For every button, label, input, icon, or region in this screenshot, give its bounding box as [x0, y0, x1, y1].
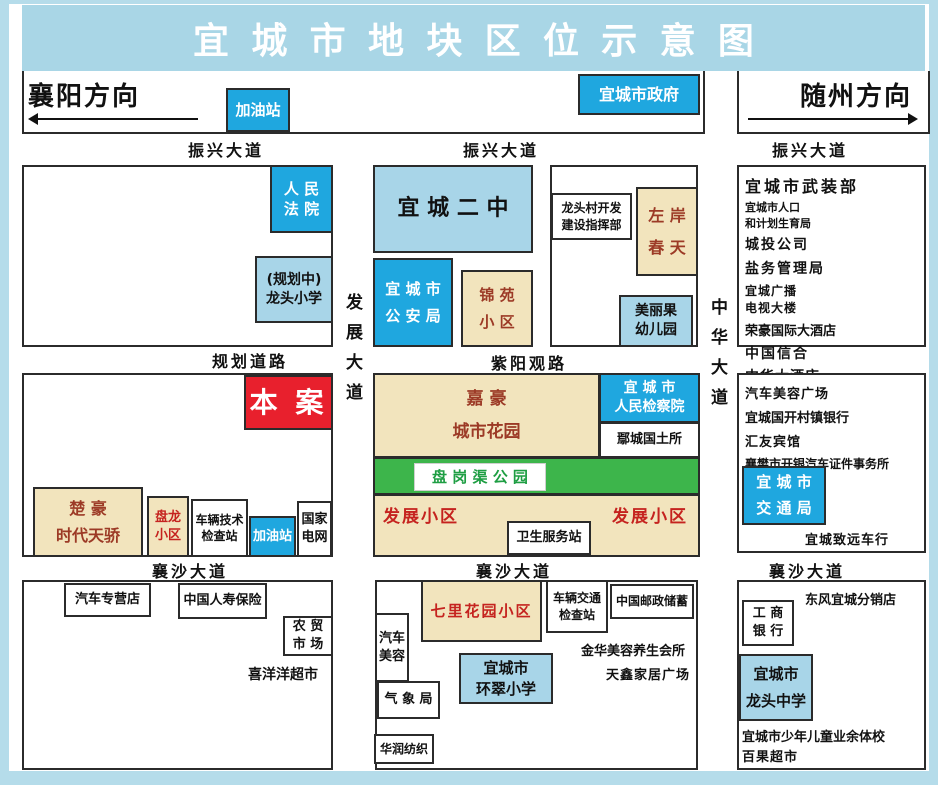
road-label-zhenxing-mid: 振兴大道: [463, 137, 539, 161]
box-zuoan-spring: 左 岸 春 天: [636, 187, 698, 276]
west-arrow-icon: [30, 118, 198, 120]
box-auto-store: 汽车专营店: [64, 583, 151, 617]
road-label-xiangsha-mid: 襄沙大道: [476, 558, 552, 582]
list-item: 电视大楼: [745, 299, 926, 316]
road-label-fazhan-avenue: 发展大道: [340, 293, 365, 413]
box-icbc-bank: 工 商 银 行: [742, 600, 794, 646]
fazhan-estate-left-label: 发展小区: [383, 502, 459, 527]
box-yicheng-no2-middle-school: 宜 城 二 中: [373, 165, 533, 253]
road-label-zhonghua-avenue: 中华大道: [705, 298, 730, 418]
road-label-ziyang: 紫阳观路: [491, 350, 567, 374]
box-peoples-court: 人 民 法 院: [270, 165, 333, 233]
list-item: 宜城国开村镇银行: [745, 407, 926, 426]
frame-left: [0, 0, 9, 785]
box-transport-bureau: 宜 城 市 交 通 局: [742, 466, 826, 525]
box-huarun-textile: 华润纺织: [374, 734, 434, 764]
list-item: 宜城广播: [745, 282, 926, 299]
list-item: 汽车美容广场: [745, 383, 926, 402]
box-qili-flower-garden: 七里花园小区: [421, 580, 542, 642]
jinhua-spa-label: 金华美容养生会所: [581, 640, 685, 659]
youth-sports-school-label: 宜城市少年儿童业余体校: [742, 726, 885, 745]
box-gas-station-west: 加油站: [249, 516, 296, 557]
box-auto-beauty: 汽车 美容: [375, 613, 409, 682]
list-item: 和计划生育局: [745, 215, 926, 231]
east-poi-list: 汽车美容广场 宜城国开村镇银行 汇友宾馆 襄樊市开银汽车证件事务所: [737, 373, 926, 465]
box-state-grid: 国家 电网: [297, 501, 332, 557]
box-chuhao-times: 楚 豪 时代天骄: [33, 487, 143, 557]
box-huancui-primary-school: 宜城市 环翠小学: [459, 653, 553, 704]
direction-west-label: 襄阳方向: [28, 76, 140, 113]
list-item: 城投公司: [745, 234, 926, 254]
list-item: 荣豪国际大酒店: [745, 320, 926, 339]
box-public-security-bureau: 宜 城 市 公 安 局: [373, 258, 453, 347]
xiyangyang-market-label: 喜洋洋超市: [248, 664, 318, 684]
title-banner: 宜城市地块区位示意图: [22, 5, 925, 71]
list-item: 宜城市武装部: [745, 173, 926, 197]
road-label-xiangsha-right: 襄沙大道: [769, 558, 845, 582]
box-longtou-middle-school: 宜城市 龙头中学: [739, 654, 813, 721]
zhiyuan-autos-label: 宜城致远车行: [805, 529, 889, 548]
road-label-guihua: 规划道路: [212, 348, 288, 372]
box-meiliguo-kindergarten: 美丽果 幼儿园: [619, 295, 693, 347]
frame-bottom: [0, 771, 938, 785]
box-city-government: 宜城市政府: [578, 74, 700, 115]
box-gas-station-top: 加油站: [226, 88, 290, 132]
box-vehicle-traffic-check: 车辆交通 检查站: [546, 580, 608, 633]
box-site-benan: 本 案: [244, 375, 333, 430]
box-procuratorate: 宜 城 市 人民检察院: [599, 373, 700, 423]
box-china-life-insurance: 中国人寿保险: [178, 583, 267, 619]
list-item: 盐务管理局: [745, 258, 926, 278]
dongfeng-store-label: 东风宜城分销店: [805, 589, 896, 608]
box-vehicle-tech-station: 车辆技术 检查站: [191, 499, 248, 557]
fazhan-estate-right-label: 发展小区: [612, 502, 688, 527]
northeast-poi-list: 宜城市武装部 宜城市人口 和计划生育局 城投公司 盐务管理局 宜城广播 电视大楼…: [737, 165, 926, 347]
list-item: 汇友宾馆: [745, 431, 926, 450]
east-arrow-icon: [748, 118, 916, 120]
list-item: 宜城市人口: [745, 199, 926, 215]
frame-right: [929, 0, 938, 785]
box-meteorological-bureau: 气 象 局: [377, 681, 440, 719]
box-pangangqu-park-label: 盘 岗 渠 公 园: [414, 463, 546, 491]
road-label-zhenxing-left: 振兴大道: [188, 137, 264, 161]
frame-top: [0, 0, 938, 4]
box-jinyuan-estate: 锦 苑 小 区: [461, 270, 533, 347]
box-panlong-estate: 盘龙 小区: [147, 496, 189, 557]
box-jiahao-city-garden: 嘉 豪 城市花园: [373, 373, 600, 458]
box-health-service-station: 卫生服务站: [507, 521, 591, 555]
road-label-zhenxing-right: 振兴大道: [772, 137, 848, 161]
plot-location-map: 宜城市地块区位示意图 襄阳方向 随州方向 加油站 宜城市政府 振兴大道 振兴大道…: [0, 0, 938, 785]
box-farmers-market: 农 贸 市 场: [283, 616, 333, 656]
road-label-xiangsha-left: 襄沙大道: [152, 558, 228, 582]
direction-east-label: 随州方向: [800, 76, 912, 113]
page-title: 宜城市地块区位示意图: [171, 12, 777, 64]
baiguo-market-label: 百果超市: [742, 746, 798, 765]
box-longtou-village-hq: 龙头村开发 建设指挥部: [551, 193, 632, 240]
list-item: 中国信合: [745, 343, 926, 363]
tianxin-plaza-label: 天鑫家居广场: [606, 664, 690, 683]
box-china-post-savings: 中国邮政储蓄: [610, 584, 694, 619]
box-land-office: 鄢城国土所: [599, 422, 700, 458]
box-planned-longtou-primary: (规划中) 龙头小学: [255, 256, 333, 323]
